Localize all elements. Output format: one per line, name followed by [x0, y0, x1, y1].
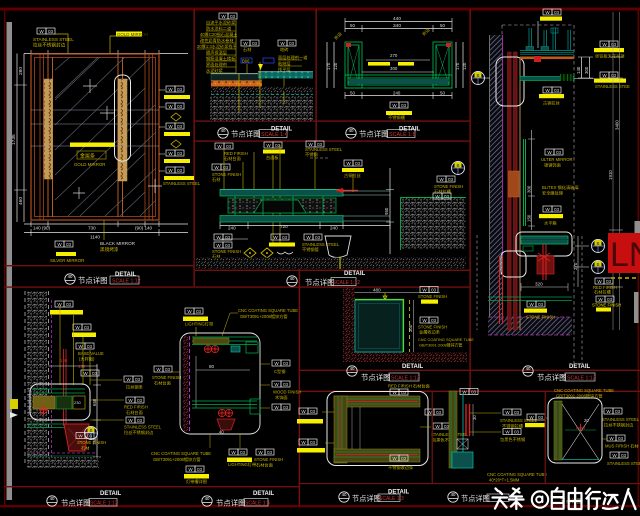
svg-text:拉丝不锈钢封边: 拉丝不锈钢封边 [604, 422, 634, 429]
svg-text:40: 40 [219, 430, 224, 435]
svg-text:STONE FINISH: STONE FINISH [592, 303, 621, 308]
svg-text:拉丝不锈钢封边: 拉丝不锈钢封边 [124, 429, 154, 436]
svg-text:LIGHTING灯带: LIGHTING灯带 [185, 321, 213, 328]
svg-text:石材台面: 石材台面 [154, 380, 171, 387]
svg-text:270: 270 [390, 53, 398, 58]
svg-text:节点详图: 节点详图 [231, 130, 261, 139]
svg-text:DETAIL: DETAIL [344, 271, 366, 277]
svg-text:270: 270 [573, 262, 578, 270]
svg-text:120: 120 [462, 62, 467, 70]
svg-text:DETAIL: DETAIL [388, 490, 410, 496]
svg-text:320: 320 [535, 282, 543, 287]
svg-text:720: 720 [280, 224, 288, 229]
svg-text:50: 50 [440, 91, 445, 96]
svg-text:RED FIRISH 石材台面: RED FIRISH 石材台面 [388, 383, 430, 390]
svg-text:LN: LN [610, 236, 640, 274]
svg-text:BASE VALUE: BASE VALUE [78, 351, 104, 356]
svg-text:CNC COATING SQUARE TUBE: CNC COATING SQUARE TUBE [554, 388, 614, 393]
svg-text:不锈钢收边条: 不锈钢收边条 [388, 464, 414, 471]
svg-text:DETAIL: DETAIL [115, 272, 137, 278]
svg-text:50: 50 [350, 23, 355, 28]
svg-text:20: 20 [584, 418, 589, 423]
svg-text:240: 240 [330, 226, 338, 231]
svg-text:(大样图): (大样图) [79, 356, 95, 363]
svg-text:拉丝钢条: 拉丝钢条 [126, 384, 144, 391]
svg-text:150: 150 [527, 214, 532, 222]
svg-text:不锈钢: 不锈钢 [305, 151, 318, 158]
svg-text:3400: 3400 [615, 120, 620, 130]
svg-text:280: 280 [18, 67, 24, 75]
svg-text:节点详图: 节点详图 [61, 499, 91, 508]
svg-text:STONE FINISH: STONE FINISH [254, 457, 283, 462]
svg-text:140 (90): 140 (90) [33, 226, 51, 231]
svg-text:石材台面: 石材台面 [256, 462, 273, 469]
svg-text:DETAIL: DETAIL [253, 491, 275, 497]
svg-text:50: 50 [350, 91, 355, 96]
svg-text:300: 300 [390, 66, 398, 71]
svg-text:480: 480 [373, 288, 381, 293]
svg-text:节点详图: 节点详图 [537, 373, 567, 382]
svg-text:金属收边条: 金属收边条 [419, 329, 441, 336]
svg-text:GOLD MIRROR: GOLD MIRROR [117, 32, 148, 37]
svg-text:节点详图: 节点详图 [216, 499, 246, 508]
svg-text:STAINLESS STEEL: STAINLESS STEEL [163, 181, 201, 186]
svg-text:节点详图: 节点详图 [352, 494, 381, 503]
svg-text:130: 130 [78, 364, 86, 369]
svg-text:GB/T3091+2008镀锌方管: GB/T3091+2008镀锌方管 [240, 313, 288, 320]
svg-text:140: 140 [576, 66, 581, 74]
svg-text:RED FIRISH: RED FIRISH [124, 405, 148, 410]
svg-text:STONE FINISH: STONE FINISH [418, 294, 447, 299]
svg-text:C型钢: C型钢 [274, 368, 285, 375]
svg-text:STONE FINISH: STONE FINISH [152, 375, 181, 380]
svg-text:SCALE 1:8: SCALE 1:8 [389, 132, 416, 138]
svg-text:GB/T3091-2008镀锌方管: GB/T3091-2008镀锌方管 [419, 343, 462, 348]
svg-text:SCALE 1:3: SCALE 1:3 [379, 496, 404, 502]
svg-text:不锈钢槽: 不锈钢槽 [388, 114, 406, 121]
svg-text:木饰面: 木饰面 [275, 394, 288, 401]
svg-text:地砖: 地砖 [280, 46, 288, 53]
svg-text:古铜拉丝: 古铜拉丝 [543, 100, 560, 107]
svg-text:ULTER MIRROR: ULTER MIRROR [541, 157, 573, 162]
svg-text:120: 120 [333, 62, 338, 70]
svg-text:节点详图: 节点详图 [361, 373, 391, 382]
svg-text:1735: 1735 [11, 134, 17, 145]
svg-text:340: 340 [393, 23, 401, 29]
svg-text:石材: 石材 [212, 176, 220, 183]
svg-text:石材: 石材 [243, 46, 251, 53]
svg-text:DETAIL: DETAIL [402, 364, 424, 370]
svg-text:GB/T3091+2008镀锌方管: GB/T3091+2008镀锌方管 [153, 456, 201, 463]
svg-text:SCALE 1:12: SCALE 1:12 [567, 376, 596, 382]
svg-text:节点详图: 节点详图 [359, 130, 389, 139]
svg-text:CNC COATING SQUARE TUBE: CNC COATING SQUARE TUBE [487, 472, 547, 477]
svg-text:GOLD MIRROR: GOLD MIRROR [74, 162, 105, 167]
svg-text:@铝板天花吊顶: @铝板天花吊顶 [595, 53, 625, 60]
svg-text:STAINLESS STEE: STAINLESS STEE [595, 84, 630, 89]
svg-text:WOOD FINISH: WOOD FINISH [273, 390, 301, 395]
svg-text:节点详图: 节点详图 [461, 494, 490, 503]
svg-text:SCALE 1:4: SCALE 1:4 [245, 501, 270, 507]
svg-text:440: 440 [393, 16, 401, 22]
svg-text:水平箱: 水平箱 [544, 220, 557, 227]
svg-text:50: 50 [440, 23, 445, 28]
svg-text:黑镜烤漆: 黑镜烤漆 [100, 246, 119, 253]
svg-text:安全膜处理: 安全膜处理 [542, 190, 564, 197]
svg-text:240: 240 [393, 91, 401, 96]
svg-text:STONE FINISH: STONE FINISH [77, 440, 106, 445]
svg-text:SCALE 1:12: SCALE 1:12 [90, 501, 118, 507]
svg-text:170: 170 [326, 62, 331, 70]
svg-text:950: 950 [384, 207, 389, 215]
svg-text:BLACK MIRROR: BLACK MIRROR [100, 241, 136, 246]
svg-text:DETAIL: DETAIL [569, 364, 591, 370]
svg-text:STONE FINISH: STONE FINISH [526, 315, 555, 320]
svg-text:1910: 1910 [608, 170, 613, 180]
svg-text:DETAIL: DETAIL [271, 127, 293, 133]
svg-text:古铜拉丝: 古铜拉丝 [344, 172, 361, 179]
svg-text:1140: 1140 [90, 235, 100, 240]
svg-text:300: 300 [408, 324, 413, 332]
svg-text:金属条: 金属条 [80, 153, 95, 160]
svg-text:LIGHTING灯带: LIGHTING灯带 [228, 461, 256, 468]
svg-text:SCALE 1:4: SCALE 1:4 [261, 132, 288, 138]
svg-text:460: 460 [18, 197, 24, 205]
svg-text:B06: B06 [242, 59, 250, 64]
svg-text:SCALE 1:12: SCALE 1:12 [391, 376, 420, 382]
svg-text:石材: 石材 [81, 445, 89, 452]
svg-text:CNC COATING SQUARE TUBE: CNC COATING SQUARE TUBE [418, 337, 474, 342]
svg-text:DETAIL: DETAIL [399, 127, 421, 133]
svg-text:SCALE 1:12: SCALE 1:12 [333, 280, 361, 286]
svg-text:STAINLESS STEEL: STAINLESS STEEL [602, 417, 640, 422]
svg-text:拉丝不锈钢封边: 拉丝不锈钢封边 [33, 42, 66, 49]
svg-text:230: 230 [74, 400, 81, 405]
svg-text:40*20*T=1.5MM: 40*20*T=1.5MM [489, 478, 520, 483]
svg-text:240: 240 [228, 226, 236, 231]
svg-text:灯带槽详图: 灯带槽详图 [186, 478, 207, 485]
svg-text:台面板: 台面板 [266, 154, 279, 161]
svg-text:SILVER MIRROR: SILVER MIRROR [50, 258, 84, 263]
svg-text:80: 80 [209, 364, 215, 369]
svg-text:SCALE 1:12: SCALE 1:12 [112, 279, 141, 285]
svg-text:730: 730 [88, 226, 96, 231]
svg-text:石材台面: 石材台面 [224, 155, 241, 162]
svg-text:300: 300 [527, 185, 532, 193]
svg-text:CNC COATING SQUARE TUBE: CNC COATING SQUARE TUBE [151, 451, 211, 456]
svg-text:银镜饰面: 银镜饰面 [544, 162, 561, 169]
svg-text:石材台面: 石材台面 [126, 409, 143, 416]
svg-text:300: 300 [584, 66, 589, 74]
svg-text:MUS FIRISH 石材: MUS FIRISH 石材 [605, 443, 639, 450]
svg-text:STAINLESS STEEL: STAINLESS STEEL [124, 425, 162, 430]
svg-text:不锈钢管: 不锈钢管 [302, 246, 319, 253]
svg-text:(90) 140: (90) 140 [135, 226, 153, 231]
svg-text:170: 170 [455, 62, 460, 70]
svg-text:650: 650 [92, 398, 97, 406]
svg-text:CNC COATING SQUARE TUBE: CNC COATING SQUARE TUBE [238, 308, 298, 313]
svg-text:节点详图: 节点详图 [78, 276, 108, 285]
svg-text:石材拉槽: 石材拉槽 [594, 289, 612, 296]
svg-text:包黑色不锈钢: 包黑色不锈钢 [500, 436, 525, 443]
svg-text:STAINLESS STEEL: STAINLESS STEEL [607, 461, 640, 466]
svg-text:节点详图: 节点详图 [305, 278, 335, 287]
svg-text:DETAIL: DETAIL [100, 491, 122, 497]
